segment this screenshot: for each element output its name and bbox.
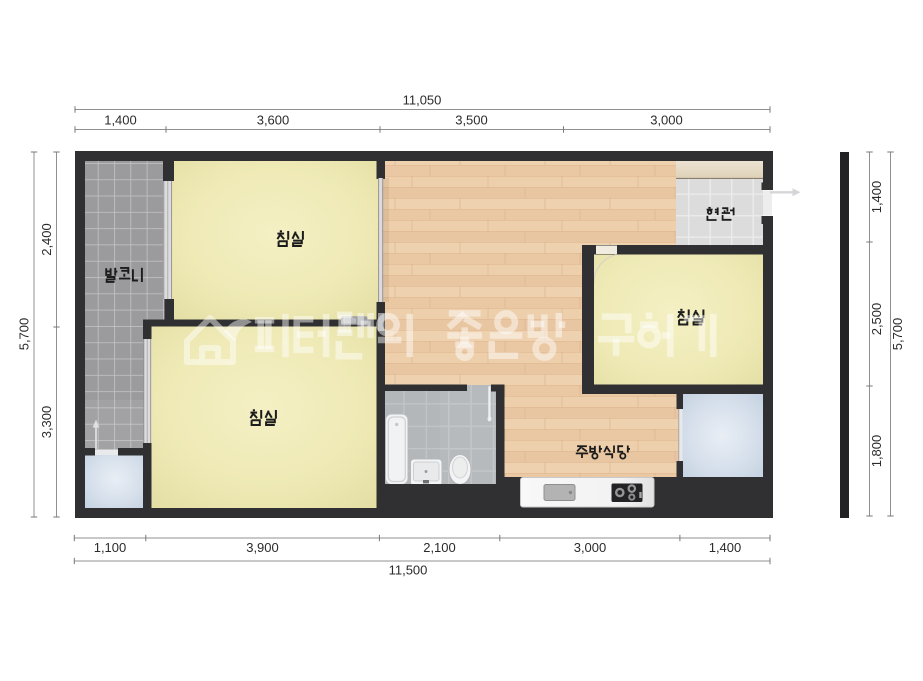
svg-text:1,100: 1,100: [94, 540, 127, 555]
svg-text:3,600: 3,600: [257, 113, 290, 128]
svg-text:3,000: 3,000: [650, 113, 683, 128]
svg-text:5,700: 5,700: [890, 318, 905, 351]
svg-text:2,500: 2,500: [869, 303, 884, 336]
svg-text:1,800: 1,800: [869, 435, 884, 468]
svg-text:2,400: 2,400: [39, 223, 54, 256]
svg-text:3,300: 3,300: [39, 406, 54, 439]
svg-text:1,400: 1,400: [104, 113, 137, 128]
svg-text:1,400: 1,400: [709, 540, 742, 555]
svg-text:11,050: 11,050: [403, 93, 442, 108]
svg-text:1,400: 1,400: [869, 181, 884, 214]
svg-text:11,500: 11,500: [389, 563, 428, 578]
svg-text:5,700: 5,700: [17, 318, 32, 351]
svg-text:2,100: 2,100: [423, 540, 456, 555]
svg-text:3,900: 3,900: [246, 540, 279, 555]
svg-text:3,500: 3,500: [455, 113, 488, 128]
svg-text:3,000: 3,000: [574, 540, 607, 555]
